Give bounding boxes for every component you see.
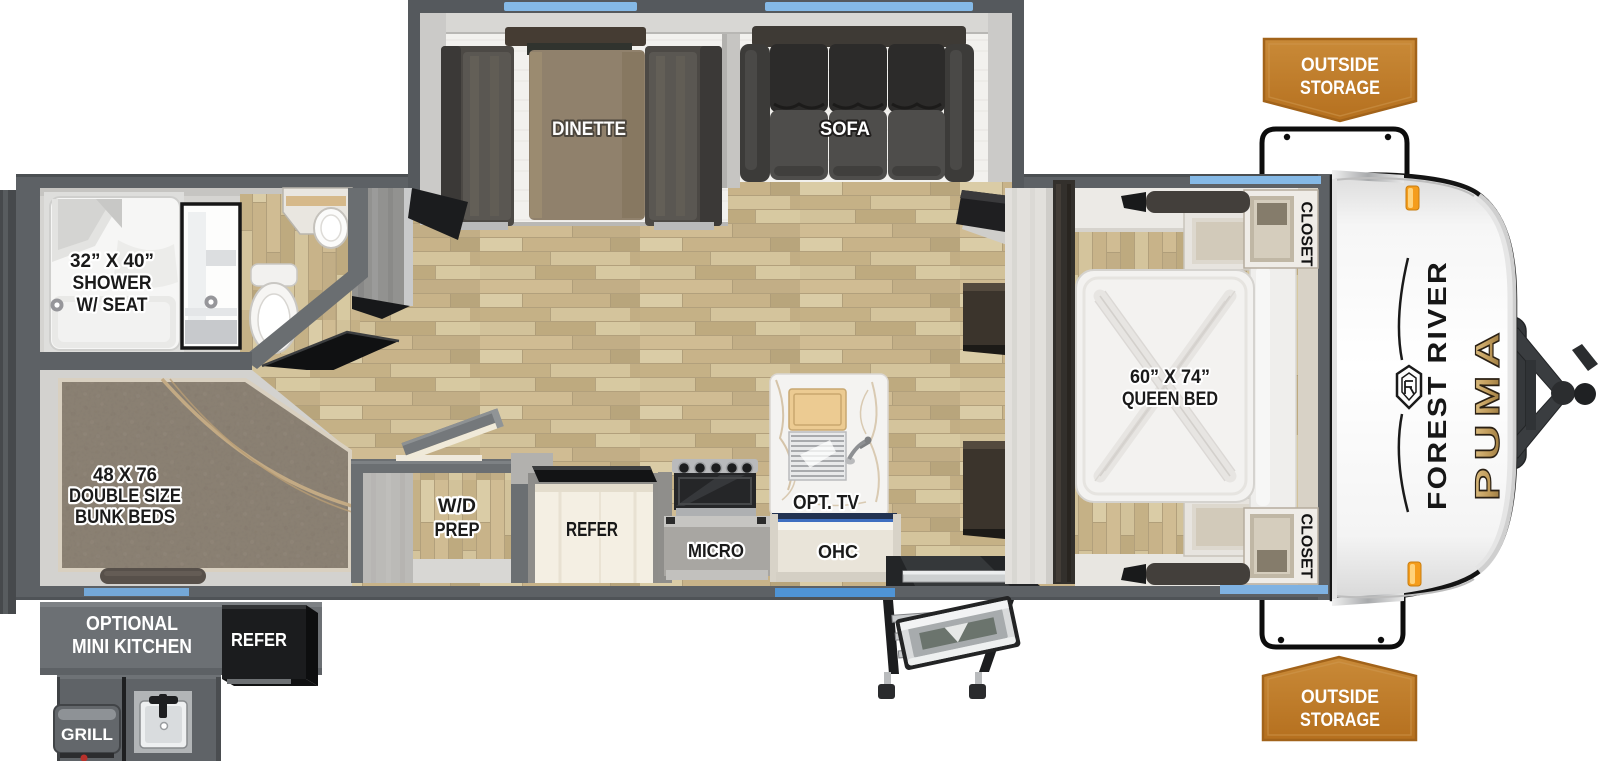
svg-text:STORAGE: STORAGE: [1300, 78, 1380, 99]
svg-text:W/ SEAT: W/ SEAT: [77, 295, 148, 316]
svg-text:32” X 40”: 32” X 40”: [70, 251, 154, 272]
svg-text:STORAGE: STORAGE: [1300, 710, 1380, 731]
svg-text:OUTSIDE: OUTSIDE: [1301, 55, 1379, 76]
svg-text:OUTSIDE: OUTSIDE: [1301, 687, 1379, 708]
svg-text:QUEEN BED: QUEEN BED: [1122, 389, 1218, 410]
svg-text:MINI KITCHEN: MINI KITCHEN: [72, 636, 192, 658]
svg-text:MICRO: MICRO: [688, 541, 744, 561]
svg-text:REFER: REFER: [566, 519, 618, 541]
svg-text:W/D: W/D: [438, 496, 476, 517]
svg-text:PREP: PREP: [435, 520, 480, 541]
svg-text:DOUBLE SIZE: DOUBLE SIZE: [69, 486, 181, 507]
svg-text:PUMA: PUMA: [1469, 325, 1507, 501]
svg-text:GRILL: GRILL: [61, 725, 113, 744]
svg-text:FOREST RIVER: FOREST RIVER: [1422, 260, 1452, 510]
svg-text:OPT. TV: OPT. TV: [793, 492, 860, 514]
svg-text:CLOSET: CLOSET: [1298, 514, 1315, 579]
svg-text:SOFA: SOFA: [820, 119, 870, 140]
svg-text:BUNK BEDS: BUNK BEDS: [75, 507, 175, 528]
svg-text:48 X 76: 48 X 76: [93, 465, 157, 486]
svg-text:60” X 74”: 60” X 74”: [1130, 367, 1210, 388]
svg-text:OPTIONAL: OPTIONAL: [86, 613, 178, 635]
svg-text:CLOSET: CLOSET: [1298, 202, 1315, 267]
svg-text:REFER: REFER: [231, 630, 287, 650]
svg-text:DINETTE: DINETTE: [552, 119, 626, 140]
svg-text:OHC: OHC: [818, 542, 858, 562]
svg-text:SHOWER: SHOWER: [73, 273, 152, 294]
